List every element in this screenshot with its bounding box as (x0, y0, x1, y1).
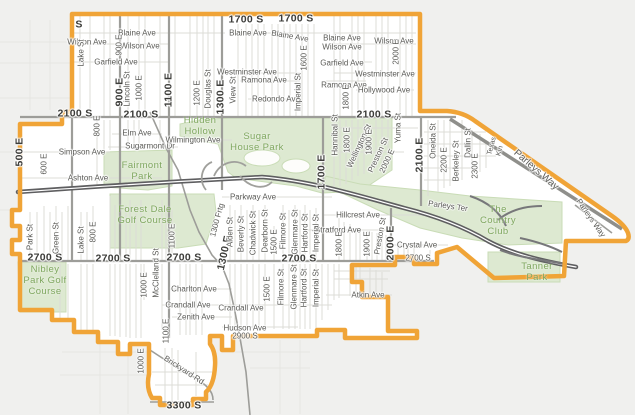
park-pond (282, 159, 310, 173)
map-graphics (0, 0, 635, 415)
park-pond (244, 150, 280, 166)
nibley-park-golf-area (18, 262, 66, 312)
map-canvas[interactable]: 1700 S1700 S2100 S2100 S2100 S2700 S2700… (0, 0, 635, 415)
